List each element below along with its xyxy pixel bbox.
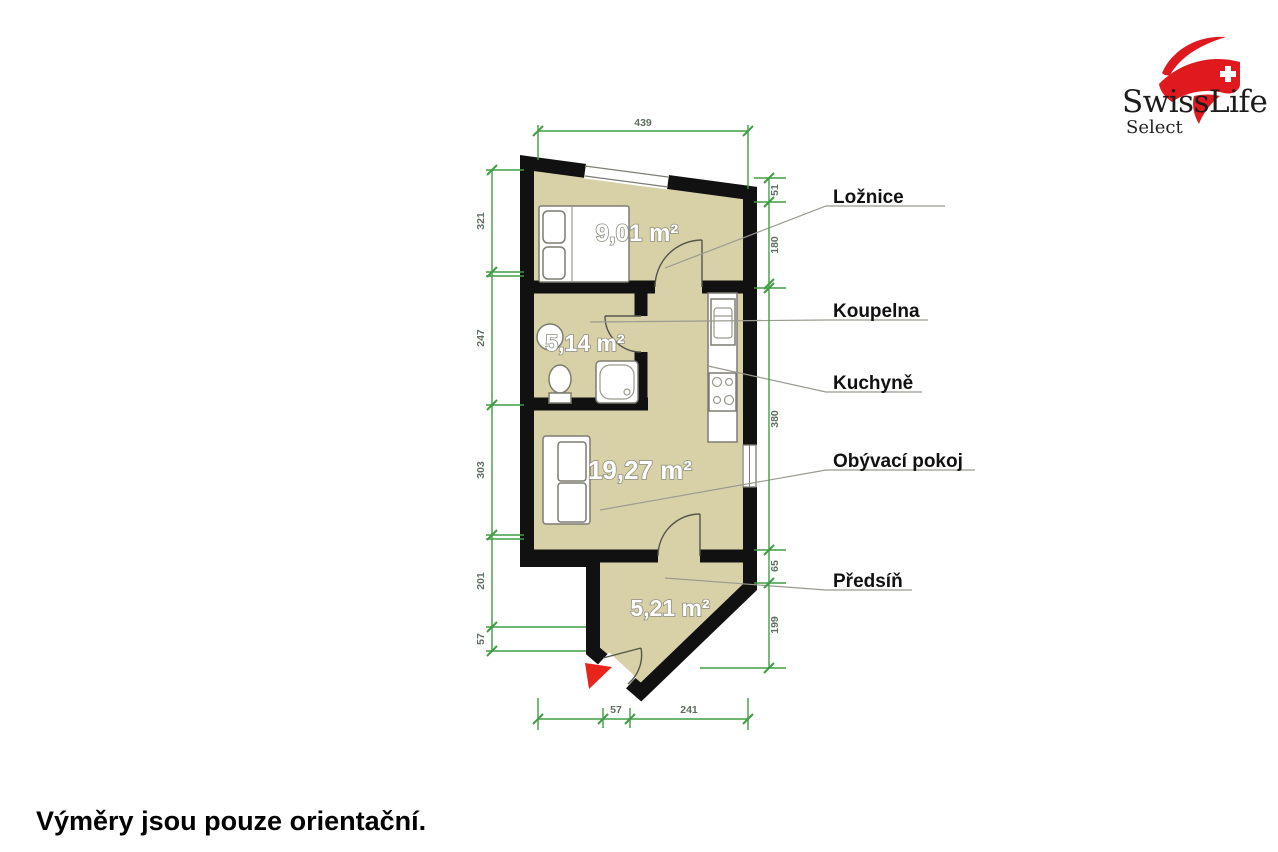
- dim-right-51: 51: [769, 184, 781, 196]
- floorplan-page: 439 321 247 303 201 57 51 180 380 65 199…: [0, 0, 1278, 852]
- bed-pillow-top: [543, 211, 565, 243]
- sofa-cushion-top: [558, 442, 586, 481]
- dim-right-380: 380: [769, 410, 781, 428]
- floorplan-canvas: 439 321 247 303 201 57 51 180 380 65 199…: [0, 0, 1278, 852]
- toilet-tank: [549, 393, 571, 403]
- label-loznice: Ložnice: [833, 187, 904, 208]
- room-name-labels: Ložnice Koupelna Kuchyně Obývací pokoj P…: [833, 187, 963, 592]
- dim-left-247: 247: [475, 329, 487, 347]
- bed-pillow-bottom: [543, 247, 565, 279]
- brand-logo: SwissLife Select: [1122, 37, 1267, 138]
- area-obyvaci-pokoj: 19,27 m²: [588, 455, 692, 485]
- dim-top-439: 439: [634, 117, 652, 129]
- stove: [709, 373, 736, 411]
- area-loznice: 9,01 m²: [596, 220, 679, 247]
- dim-right-65: 65: [769, 560, 781, 572]
- disclaimer-text: Výměry jsou pouze orientační.: [36, 806, 426, 837]
- dim-bottom-241: 241: [680, 704, 698, 716]
- dim-left-321: 321: [475, 212, 487, 230]
- brand-subname: Select: [1126, 117, 1183, 138]
- label-kuchyne: Kuchyně: [833, 373, 913, 394]
- sofa-cushion-bottom: [558, 483, 586, 522]
- dim-left-303: 303: [475, 461, 487, 479]
- dim-ext-bottom: [538, 698, 748, 730]
- entrance-arrow-icon: [585, 663, 612, 689]
- toilet-bowl: [549, 365, 571, 393]
- dim-bottom-57: 57: [610, 704, 622, 716]
- brand-name: SwissLife: [1122, 84, 1267, 120]
- label-obyvaci-pokoj: Obývací pokoj: [833, 451, 963, 472]
- label-predsin: Předsíň: [833, 571, 903, 592]
- dim-right-180: 180: [769, 236, 781, 254]
- label-koupelna: Koupelna: [833, 301, 920, 322]
- dim-left-201: 201: [475, 572, 487, 590]
- shower-tray: [596, 361, 638, 403]
- dim-right-199: 199: [769, 616, 781, 634]
- dim-left-57: 57: [475, 633, 487, 645]
- area-predsin: 5,21 m²: [630, 595, 710, 621]
- area-koupelna: 5,14 m²: [545, 330, 625, 356]
